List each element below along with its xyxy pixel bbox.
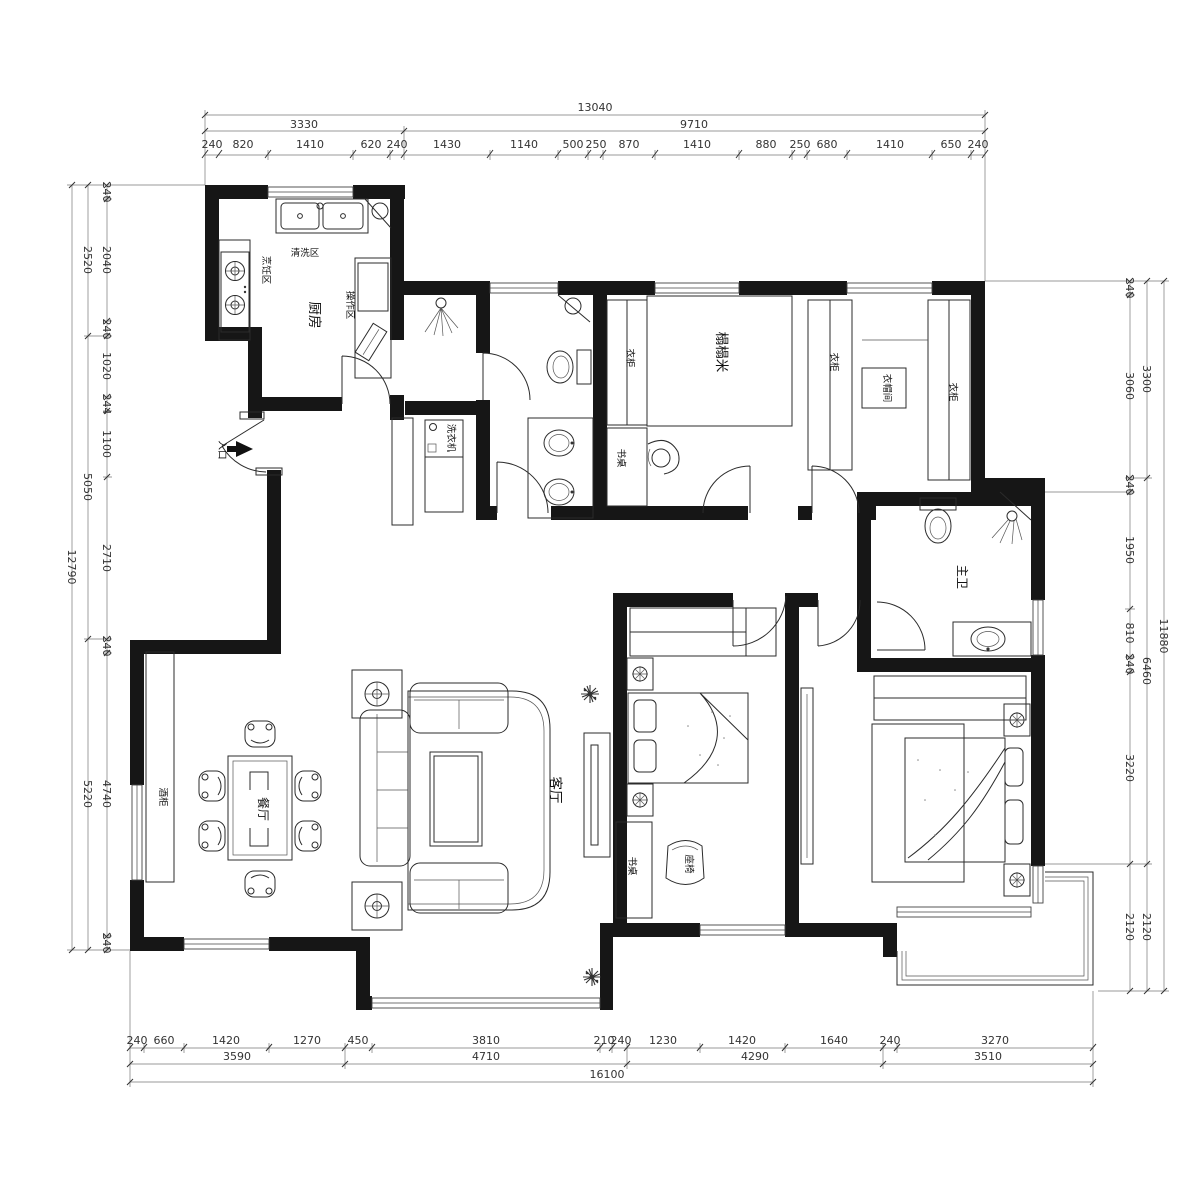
entry-arrow-icon bbox=[236, 441, 253, 457]
label-cook-zone: 烹饪区 bbox=[260, 256, 272, 285]
nightstand bbox=[627, 784, 653, 816]
tatami-desk bbox=[607, 428, 647, 506]
dining-chair bbox=[295, 771, 321, 801]
dim: 3270 bbox=[981, 1034, 1009, 1047]
bed bbox=[905, 738, 1005, 862]
living-bay-window bbox=[372, 998, 600, 1008]
tall-cabinet bbox=[392, 418, 413, 525]
dim: 1140 bbox=[510, 138, 538, 151]
dim: 3810 bbox=[472, 1034, 500, 1047]
label-master-bath: 主卫 bbox=[955, 565, 969, 589]
dim: 810 bbox=[1123, 623, 1136, 644]
dim: 880 bbox=[756, 138, 777, 151]
dim: 1420 bbox=[728, 1034, 756, 1047]
desk-chair bbox=[648, 440, 679, 474]
dimensions-right: 11880 3300 6460 2120 240 3060 240 1950 8… bbox=[985, 278, 1170, 995]
dim-left-sub: 2520 bbox=[81, 246, 94, 274]
dim: 240 bbox=[611, 1034, 632, 1047]
dim-left-sub: 5050 bbox=[81, 473, 94, 501]
shower-head-icon bbox=[436, 298, 446, 308]
bath-window bbox=[490, 283, 558, 293]
dim-right-sub: 3300 bbox=[1140, 365, 1153, 393]
shower-door bbox=[483, 353, 530, 400]
bedroom2: 书桌 座椅 bbox=[616, 608, 813, 918]
dim: 240 bbox=[1123, 278, 1136, 299]
dim: 240 bbox=[880, 1034, 901, 1047]
dim: 1100 bbox=[100, 430, 113, 458]
dim: 1430 bbox=[433, 138, 461, 151]
dim: 1270 bbox=[293, 1034, 321, 1047]
plant-icon bbox=[583, 968, 601, 986]
dim: 3220 bbox=[1123, 754, 1136, 782]
dim: 240 bbox=[100, 319, 113, 340]
guest-toilet bbox=[577, 350, 591, 384]
label-kitchen: 厨房 bbox=[306, 302, 322, 329]
corner-basin bbox=[565, 298, 581, 314]
label-desk: 书桌 bbox=[615, 448, 627, 468]
dining-chair bbox=[199, 771, 225, 801]
master-bedroom bbox=[872, 676, 1030, 896]
vanity-counter bbox=[528, 418, 593, 518]
master-bath-door bbox=[877, 602, 925, 650]
master-balcony-window bbox=[897, 907, 1031, 917]
label-wine-cabinet: 酒柜 bbox=[157, 787, 169, 807]
dim-right-sub: 6460 bbox=[1140, 657, 1153, 685]
rug bbox=[872, 724, 964, 882]
dim-left-sub: 5220 bbox=[81, 780, 94, 808]
dining-bottom-window bbox=[184, 939, 269, 949]
label-wardrobe: 衣柜 bbox=[624, 348, 636, 368]
dining-chair bbox=[199, 821, 225, 851]
tatami-room: 衣柜 榻榻米 书桌 bbox=[607, 296, 792, 506]
master-balcony-door bbox=[1033, 866, 1043, 903]
wine-cabinet bbox=[146, 652, 174, 882]
master-suite-door bbox=[818, 600, 860, 646]
dim: 1420 bbox=[212, 1034, 240, 1047]
dim: 620 bbox=[361, 138, 382, 151]
tv-console bbox=[584, 733, 610, 857]
dim-bottom-total: 16100 bbox=[590, 1068, 625, 1081]
dim-bottom-sub: 3590 bbox=[223, 1050, 251, 1063]
dim-bottom-sub: 4710 bbox=[472, 1050, 500, 1063]
label-prep-zone: 操作区 bbox=[344, 291, 356, 320]
dim: 240 bbox=[968, 138, 989, 151]
label-tatami: 榻榻米 bbox=[713, 332, 729, 373]
dim: 1950 bbox=[1123, 536, 1136, 564]
master-bath-window bbox=[1033, 600, 1043, 655]
dim: 240 bbox=[100, 933, 113, 954]
entrance: 入口 bbox=[216, 440, 253, 459]
bed bbox=[628, 693, 748, 783]
dim-right-total: 11880 bbox=[1157, 619, 1170, 654]
cutting-board bbox=[358, 263, 388, 311]
walkin-closet: 衣柜 衣柜 衣帽间 bbox=[808, 300, 970, 480]
guest-bath-door bbox=[497, 462, 548, 513]
shower-head-icon bbox=[1007, 511, 1017, 521]
side-table-lamp bbox=[352, 882, 402, 930]
label-desk: 书桌 bbox=[626, 856, 638, 876]
dim: 240 bbox=[127, 1034, 148, 1047]
dining-side-window bbox=[132, 785, 142, 880]
dim: 1410 bbox=[683, 138, 711, 151]
dim: 1230 bbox=[649, 1034, 677, 1047]
nightstand bbox=[1004, 864, 1030, 896]
dim: 240 bbox=[1123, 475, 1136, 496]
dim: 1410 bbox=[296, 138, 324, 151]
label-closet: 衣帽间 bbox=[881, 374, 893, 403]
dim: 500 bbox=[563, 138, 584, 151]
tv bbox=[591, 745, 598, 845]
dim: 680 bbox=[817, 138, 838, 151]
dining-room: 酒柜 餐厅 bbox=[146, 652, 321, 897]
nightstand bbox=[627, 658, 653, 690]
dim: 240 bbox=[202, 138, 223, 151]
dim: 244 bbox=[100, 394, 113, 415]
dim: 870 bbox=[619, 138, 640, 151]
dim: 1020 bbox=[100, 352, 113, 380]
dim-top-sub: 9710 bbox=[680, 118, 708, 131]
dim-bottom-sub: 4290 bbox=[741, 1050, 769, 1063]
wardrobe-end bbox=[746, 608, 776, 656]
dim-top-total: 13040 bbox=[578, 101, 613, 114]
rug bbox=[408, 691, 550, 910]
dim: 4740 bbox=[100, 780, 113, 808]
dim: 820 bbox=[233, 138, 254, 151]
label-wash-zone: 清洗区 bbox=[291, 247, 320, 259]
tatami-door bbox=[703, 466, 750, 513]
dim: 1410 bbox=[876, 138, 904, 151]
dim: 240 bbox=[387, 138, 408, 151]
dim-top-sub: 3330 bbox=[290, 118, 318, 131]
sink-right bbox=[323, 203, 363, 229]
kitchen-door bbox=[342, 356, 390, 404]
dim-right-sub: 2120 bbox=[1140, 913, 1153, 941]
living-room: 客厅 bbox=[352, 670, 610, 986]
coffee-table bbox=[430, 752, 482, 846]
dim: 240 bbox=[1123, 654, 1136, 675]
label-dining: 餐厅 bbox=[256, 797, 271, 821]
label-washer: 洗衣机 bbox=[445, 424, 457, 453]
dim-left-total: 12790 bbox=[65, 550, 78, 585]
dim: 450 bbox=[348, 1034, 369, 1047]
closet-window bbox=[847, 283, 932, 293]
plant-icon bbox=[581, 685, 599, 703]
sink-left bbox=[281, 203, 319, 229]
bedroom2-window bbox=[700, 925, 785, 935]
dim: 1640 bbox=[820, 1034, 848, 1047]
label-chair: 座椅 bbox=[683, 854, 695, 874]
label-living: 客厅 bbox=[547, 777, 564, 804]
balcony bbox=[897, 872, 1093, 985]
entry-door bbox=[222, 412, 282, 475]
sofa-left bbox=[360, 710, 410, 866]
dim: 250 bbox=[586, 138, 607, 151]
label-wardrobe: 衣柜 bbox=[828, 352, 840, 372]
walls bbox=[130, 185, 1045, 1010]
dim-bottom-sub: 3510 bbox=[974, 1050, 1002, 1063]
dining-chair bbox=[245, 721, 275, 747]
floor-plan: 13040 3330 9710 240 820 1410 620 240 143… bbox=[0, 0, 1200, 1200]
label-entrance: 入口 bbox=[216, 440, 227, 459]
dining-chair bbox=[295, 821, 321, 851]
dim: 240 bbox=[100, 636, 113, 657]
kitchen-window bbox=[268, 187, 353, 197]
washing-machine bbox=[425, 420, 463, 457]
bedroom2-door bbox=[733, 596, 786, 646]
side-table-lamp bbox=[352, 670, 402, 718]
kitchen: 清洗区 烹饪区 厨房 操作区 bbox=[219, 199, 391, 378]
dim: 2710 bbox=[100, 544, 113, 572]
dining-chair bbox=[245, 871, 275, 897]
dim: 2040 bbox=[100, 246, 113, 274]
closet-door bbox=[812, 466, 859, 513]
dim: 2120 bbox=[1123, 913, 1136, 941]
dim: 660 bbox=[154, 1034, 175, 1047]
dim: 240 bbox=[100, 182, 113, 203]
master-bath: 主卫 bbox=[920, 492, 1031, 656]
chair: 座椅 bbox=[666, 841, 704, 885]
dim: 650 bbox=[941, 138, 962, 151]
tatami-window bbox=[655, 283, 739, 293]
dim: 250 bbox=[790, 138, 811, 151]
label-wardrobe: 衣柜 bbox=[947, 382, 959, 402]
dim: 3060 bbox=[1123, 372, 1136, 400]
